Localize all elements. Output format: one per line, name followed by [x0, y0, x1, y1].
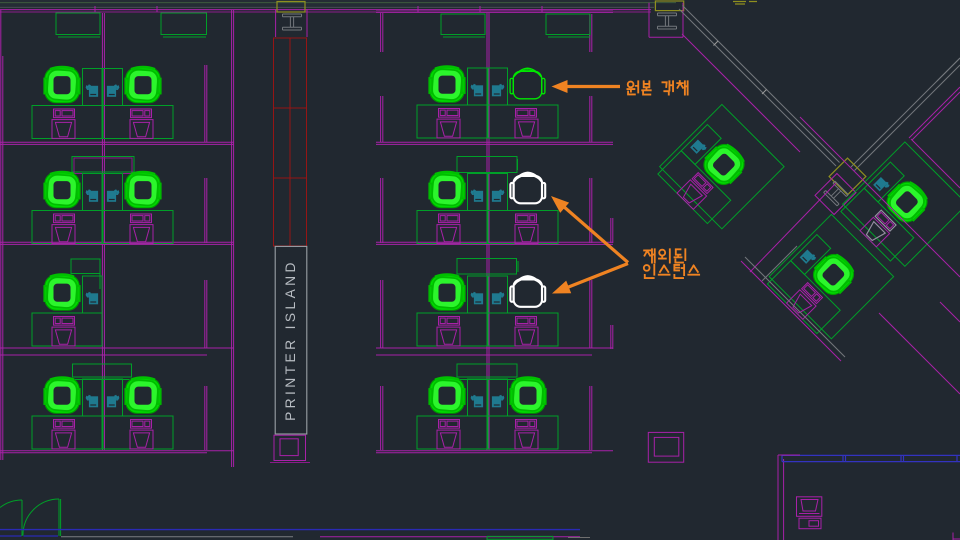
svg-text:PRINTER ISLAND: PRINTER ISLAND	[283, 259, 298, 421]
